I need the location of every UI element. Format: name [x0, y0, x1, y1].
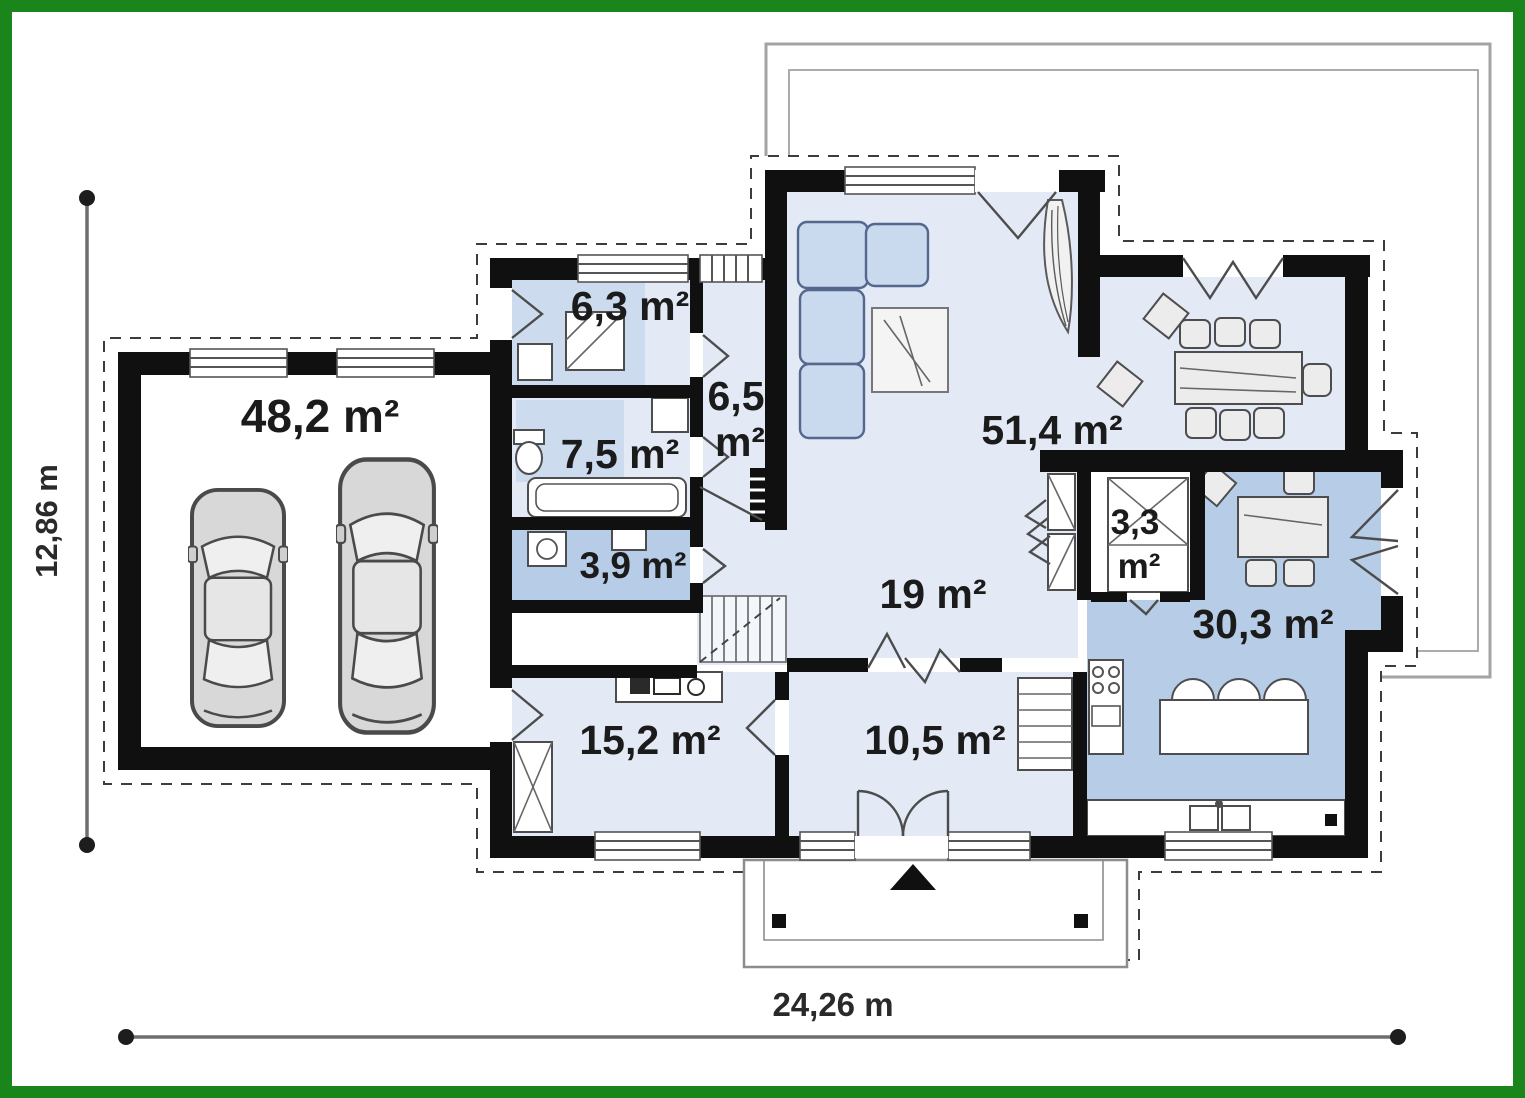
label-living-room: 51,4 m² [981, 407, 1122, 453]
label-bedroom: 15,2 m² [579, 717, 720, 763]
label-vestibule: 10,5 m² [864, 717, 1005, 763]
washer [528, 532, 566, 566]
corridor-window [700, 255, 762, 282]
stove [1089, 660, 1123, 754]
label-pantry-unit: m² [1118, 547, 1161, 586]
label-bathroom: 7,5 m² [561, 431, 680, 477]
dimension-width: 24,26 m [118, 986, 1406, 1045]
label-corridor-unit: m² [715, 419, 765, 465]
label-garage: 48,2 m² [241, 390, 400, 442]
label-corridor-value: 6,5 [708, 373, 765, 419]
dimension-height: 12,86 m [29, 190, 95, 853]
vestibule-closet [1018, 678, 1072, 770]
garage-window-1 [190, 349, 287, 377]
label-mudroom: 6,3 m² [571, 283, 690, 329]
porch-post-right [1074, 914, 1088, 928]
vestibule-window-right [948, 832, 1030, 860]
car-left [188, 490, 288, 726]
mudroom-window [578, 255, 688, 282]
label-laundry: 3,9 m² [580, 545, 687, 586]
mudroom-sink [518, 344, 552, 380]
bathtub [528, 478, 686, 517]
car-right [336, 460, 438, 733]
floor-plan-canvas: 48,2 m² 6,3 m² 7,5 m² 6,5 m² 3,9 m² 15,2… [0, 0, 1525, 1098]
bedroom-window [595, 832, 700, 860]
stairs [700, 596, 786, 662]
kitchen-island [1160, 679, 1308, 754]
label-pantry-value: 3,3 [1111, 503, 1160, 542]
living-window [845, 167, 975, 194]
toilet [514, 430, 544, 474]
height-dimension-label: 12,86 m [29, 464, 64, 578]
porch-post-left [772, 914, 786, 928]
porch [744, 860, 1127, 967]
wardrobe [514, 742, 552, 832]
rug [872, 308, 948, 392]
vestibule-window-left [800, 832, 855, 860]
kitchen-window [1165, 832, 1272, 860]
floor-plan-page: 48,2 m² 6,3 m² 7,5 m² 6,5 m² 3,9 m² 15,2… [0, 0, 1525, 1098]
garage-window-2 [337, 349, 434, 377]
width-dimension-label: 24,26 m [772, 986, 893, 1023]
bath-sink [652, 398, 688, 432]
label-kitchen: 30,3 m² [1192, 601, 1333, 647]
label-hall: 19 m² [879, 571, 986, 617]
kitchen-counter [1087, 800, 1345, 836]
